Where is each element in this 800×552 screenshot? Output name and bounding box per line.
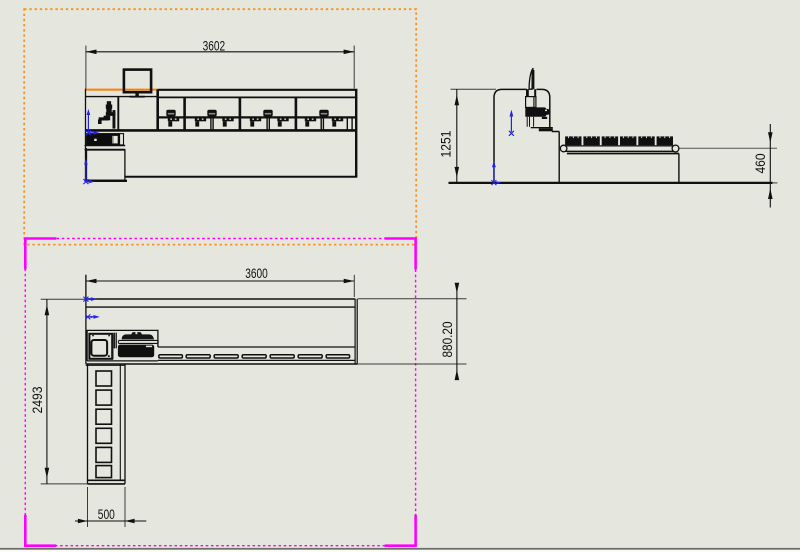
svg-text:460: 460 [753, 153, 769, 173]
svg-text:2493: 2493 [30, 386, 46, 413]
svg-text:3602: 3602 [203, 38, 226, 54]
svg-text:3600: 3600 [245, 266, 268, 282]
svg-text:500: 500 [98, 507, 115, 523]
svg-text:880.20: 880.20 [440, 321, 456, 357]
svg-text:1251: 1251 [439, 130, 455, 157]
